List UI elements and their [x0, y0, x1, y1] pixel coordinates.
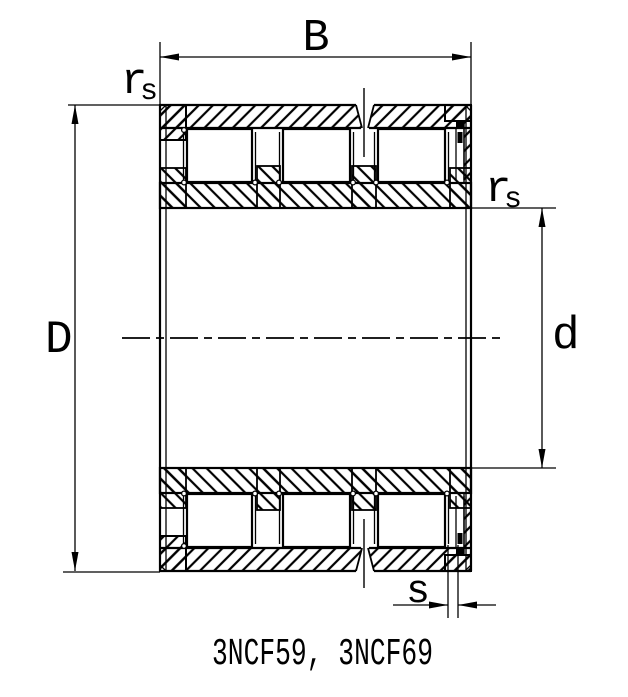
outer-ring-bottom-left-flange	[160, 536, 186, 571]
dimension-bore-diameter-d: d	[471, 208, 580, 468]
label-B: B	[302, 13, 329, 64]
dimension-width-B: B	[160, 13, 471, 105]
roller	[187, 494, 252, 547]
drawing-stage: B D d r s r s s 3NCF59, 3NCF69	[0, 0, 628, 692]
roller	[187, 129, 252, 182]
inner-ring-top-rib-1	[257, 166, 280, 208]
label-s: s	[406, 570, 430, 615]
bearing-technical-drawing: B D d r s r s s 3NCF59, 3NCF69	[0, 0, 628, 692]
label-D: D	[45, 314, 73, 366]
roller	[283, 129, 350, 182]
arrowhead-top	[72, 105, 79, 124]
inner-ring-bottom-rib-2	[352, 468, 376, 510]
inner-ring-top-left-rib	[160, 168, 186, 208]
inner-ring-top-rib-2	[352, 166, 376, 208]
inner-ring-bottom-right-rib	[450, 468, 471, 508]
arrowhead-right	[452, 54, 471, 61]
inner-ring-bottom-left-rib	[160, 468, 186, 508]
inner-ring-top-band	[160, 183, 471, 208]
outer-ring-bottom-band	[160, 548, 471, 571]
label-rs-left: r s	[121, 57, 158, 109]
figure-caption: 3NCF59, 3NCF69	[212, 633, 433, 676]
arrowhead-left	[429, 602, 448, 609]
label-rs-right: r s	[485, 165, 522, 217]
roller	[378, 494, 445, 547]
roller	[378, 129, 445, 182]
arrowhead-bottom	[539, 449, 546, 468]
outer-ring-top-left-flange	[160, 105, 186, 140]
inner-ring-top-right-rib	[450, 168, 471, 208]
roller	[283, 494, 350, 547]
arrowhead-right	[458, 602, 477, 609]
arrowhead-top	[539, 208, 546, 227]
outer-ring-top-band	[160, 105, 471, 128]
arrowhead-bottom	[72, 552, 79, 571]
label-d: d	[552, 310, 580, 362]
inner-ring-bottom-band	[160, 468, 471, 493]
arrowhead-left	[160, 54, 179, 61]
inner-ring-bottom-rib-1	[257, 468, 280, 510]
